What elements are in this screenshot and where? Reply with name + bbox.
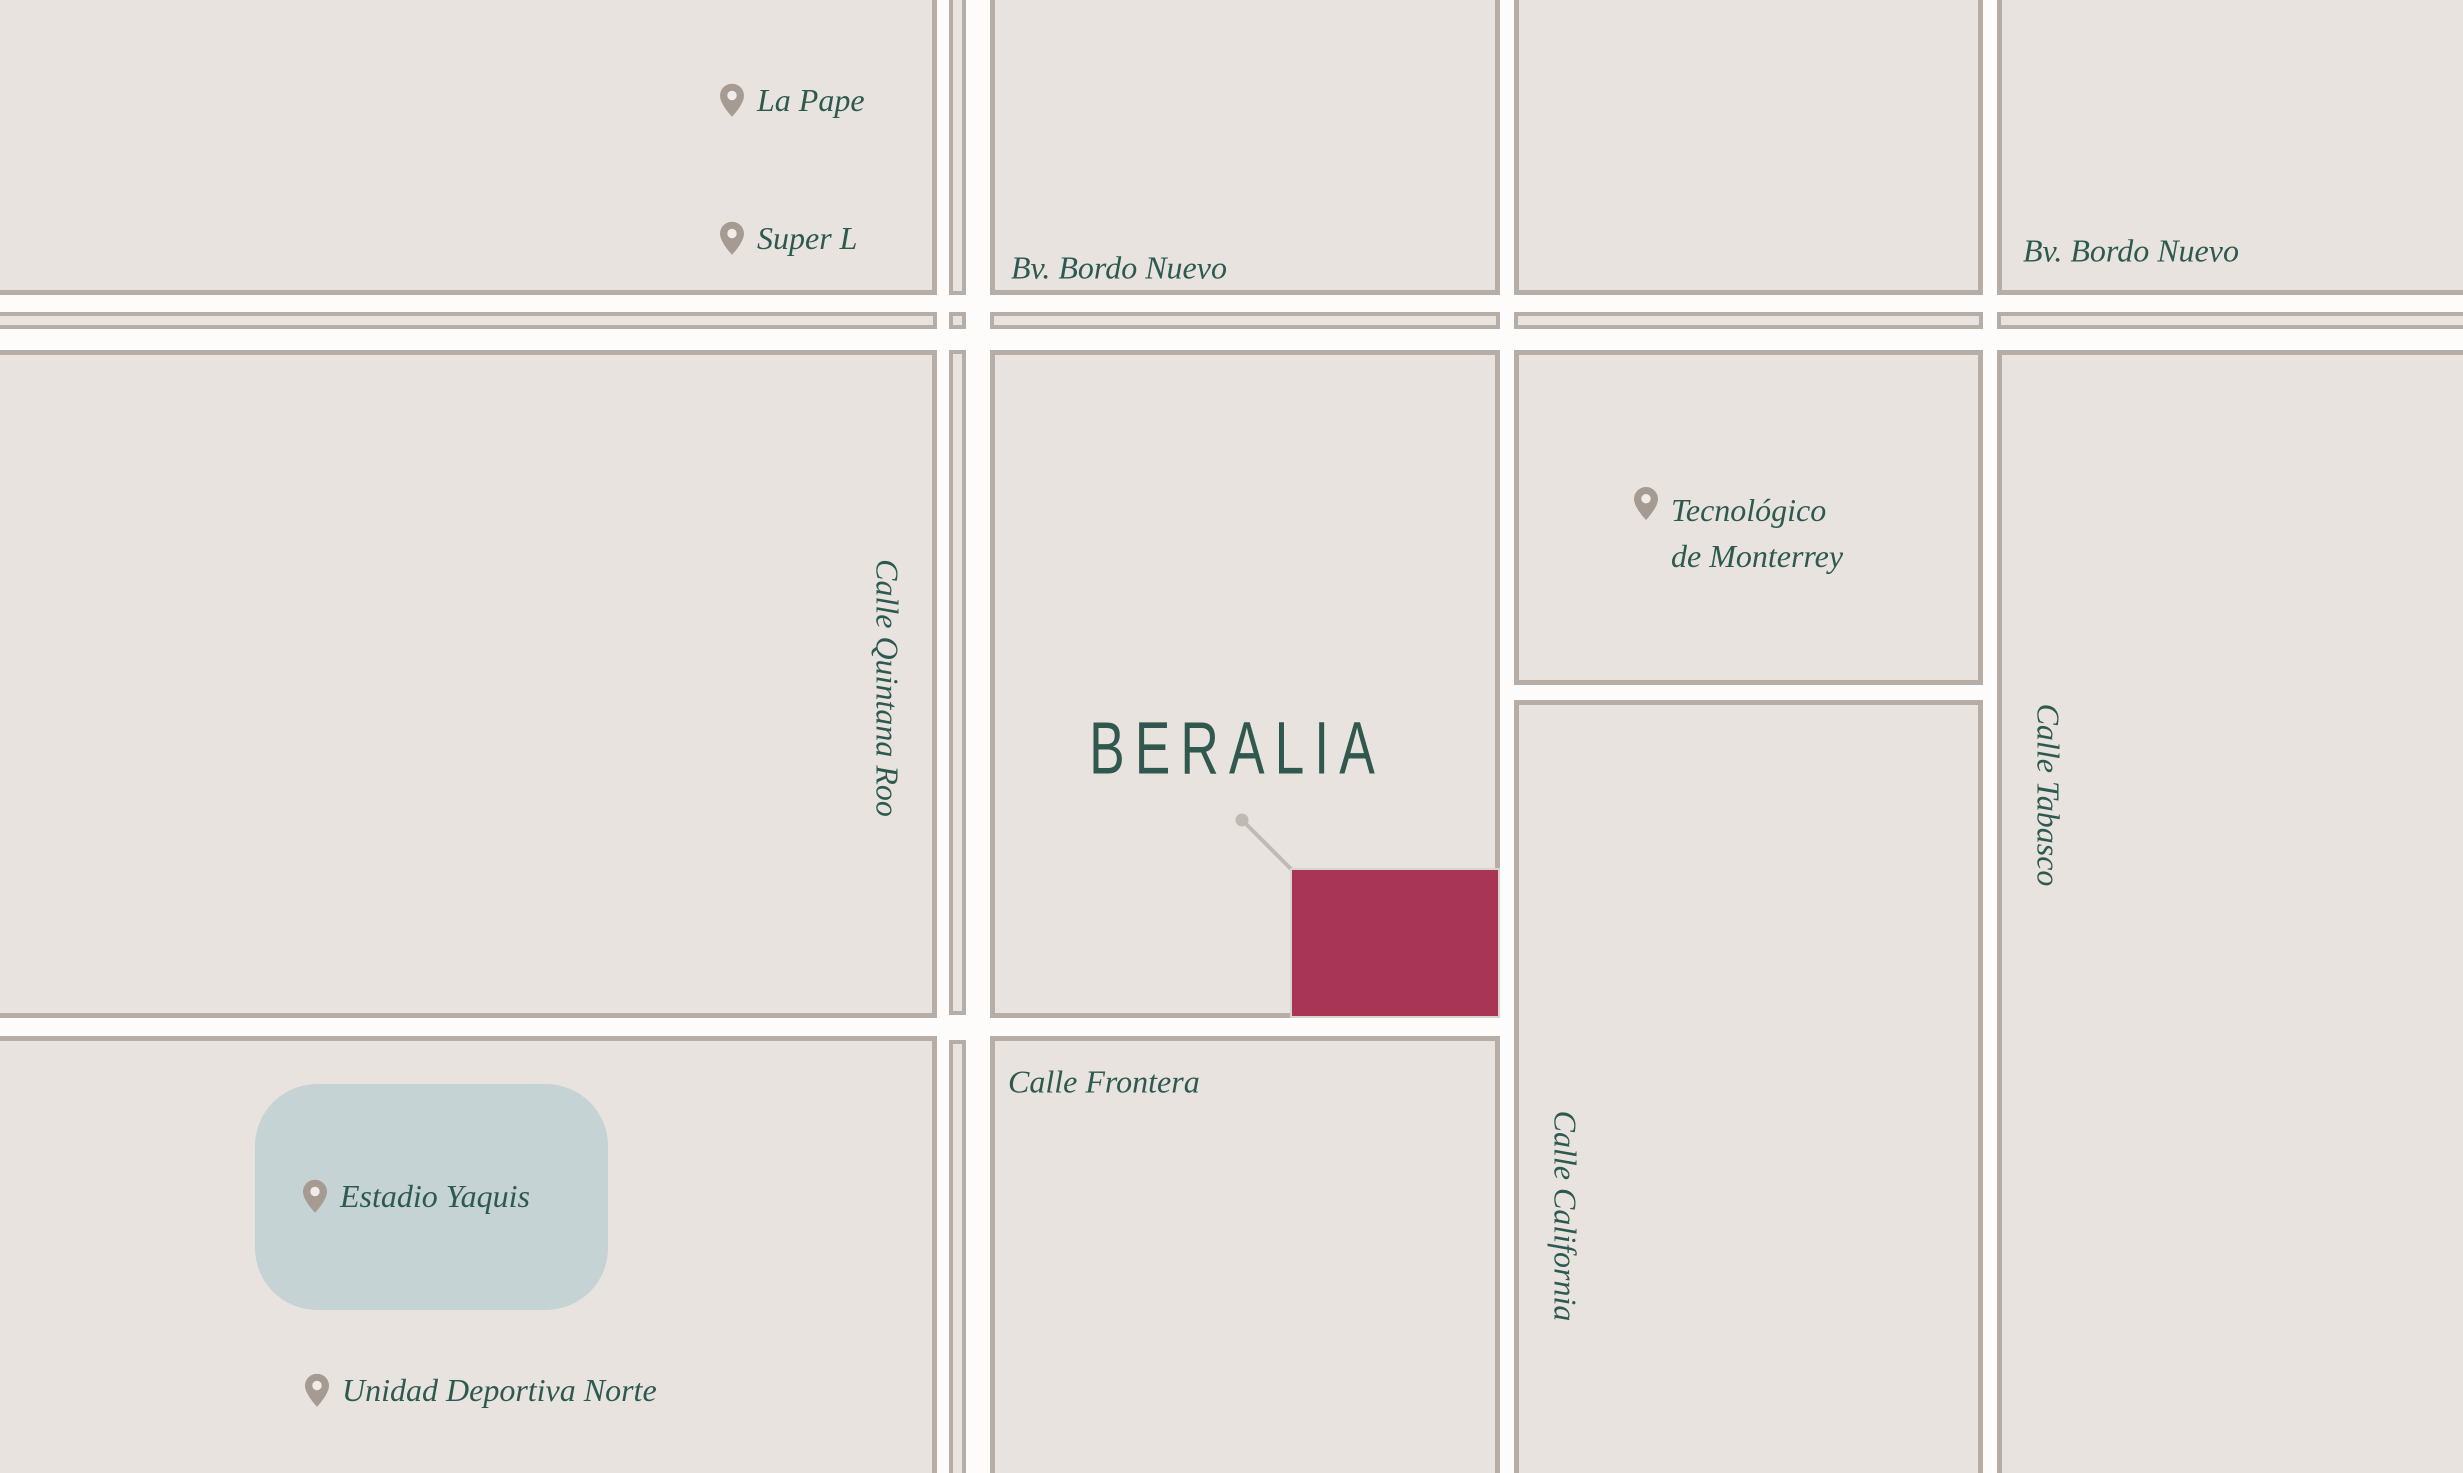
- street-label-california: Calle California: [1547, 1111, 1584, 1322]
- street-label-bordo-nuevo-center: Bv. Bordo Nuevo: [1011, 250, 1227, 287]
- map-pin-icon: [1634, 487, 1658, 520]
- boulevard-median: [0, 312, 937, 329]
- site-highlight: [1290, 868, 1500, 1018]
- street-label-quintana-roo: Calle Quintana Roo: [869, 559, 906, 817]
- city-block-mid-left: [0, 350, 937, 1018]
- poi-label-line2: de Monterrey: [1671, 538, 1843, 574]
- boulevard-median: [1997, 312, 2463, 329]
- city-block-top-east: [1514, 0, 1983, 295]
- median-intersection-square: [949, 312, 966, 329]
- leader-dot: [1236, 814, 1249, 827]
- location-map: BERALIA Bv. Bordo Nuevo Bv. Bordo Nuevo …: [0, 0, 2463, 1473]
- street-label-tabasco: Calle Tabasco: [2030, 704, 2067, 887]
- city-block-east: [1997, 350, 2463, 1473]
- map-pin-icon: [720, 221, 744, 254]
- poi-label-line1: Tecnológico: [1671, 492, 1826, 528]
- city-block-california: [1514, 700, 1983, 1473]
- city-block-bottom-center: [990, 1036, 1500, 1473]
- poi-label: Estadio Yaquis: [340, 1173, 530, 1219]
- poi-la-pape: La Pape: [720, 77, 865, 123]
- boulevard-median: [949, 350, 966, 1015]
- poi-label: Tecnológicode Monterrey: [1671, 487, 1843, 580]
- poi-label: Super L: [757, 215, 857, 261]
- poi-label: La Pape: [757, 77, 865, 123]
- poi-tecnologico: Tecnológicode Monterrey: [1634, 487, 1843, 580]
- street-label-bordo-nuevo-east: Bv. Bordo Nuevo: [2023, 233, 2239, 270]
- boulevard-median: [949, 1040, 966, 1473]
- poi-estadio-yaquis: Estadio Yaquis: [303, 1173, 530, 1219]
- project-title: BERALIA: [1089, 706, 1385, 791]
- map-pin-icon: [720, 83, 744, 116]
- boulevard-median: [1514, 312, 1983, 329]
- poi-super-l: Super L: [720, 215, 857, 261]
- map-pin-icon: [305, 1373, 329, 1406]
- poi-unidad-deportiva: Unidad Deportiva Norte: [305, 1367, 657, 1413]
- street-label-frontera: Calle Frontera: [1008, 1064, 1200, 1101]
- map-pin-icon: [303, 1179, 327, 1212]
- poi-label: Unidad Deportiva Norte: [342, 1367, 657, 1413]
- boulevard-median: [949, 0, 966, 295]
- boulevard-median: [990, 312, 1500, 329]
